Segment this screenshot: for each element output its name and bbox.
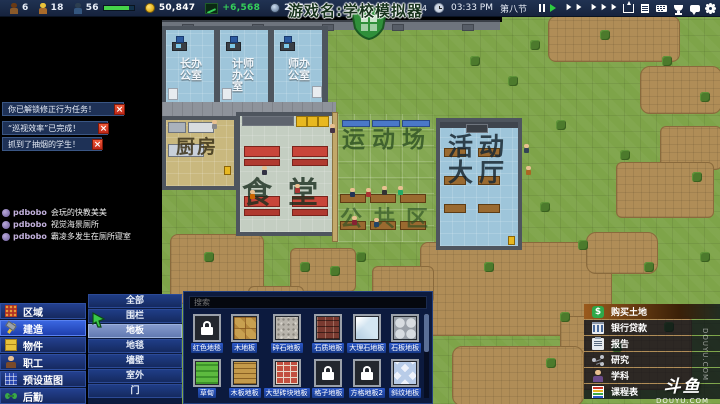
field-bench [342, 120, 370, 127]
character-sprite [382, 186, 387, 195]
canteen-bench [244, 159, 280, 166]
notification-toast: 抓到了抽烟的学生！ × [2, 137, 102, 151]
lock-icon [201, 321, 213, 335]
menu-item-buy-land[interactable]: $购买土地 [584, 304, 720, 319]
tile-palette-panel: 红色地毯 木地板 碎石地板 石质地板 大理石地板 石板地板 草甸 木板地板 大型… [183, 291, 433, 404]
character-sprite [366, 188, 371, 197]
close-icon[interactable]: × [98, 123, 109, 134]
field-table [370, 194, 396, 203]
coin-icon [145, 3, 155, 13]
notification-toast: 你已解锁修正行为任务！ × [2, 102, 124, 116]
subject-person-icon [592, 370, 604, 382]
field-bench [372, 120, 400, 127]
tile-gravel-floor[interactable]: 碎石地板 [264, 314, 310, 353]
chat-text: 霸凌多发生在厕所寝室 [51, 231, 131, 242]
character-sprite [212, 120, 217, 129]
time-display: 03:33 PM [451, 3, 493, 13]
object-box-icon [5, 339, 17, 351]
canteen-table [244, 146, 280, 157]
stat-money[interactable]: 50,847 [145, 3, 196, 13]
hall-desk [444, 204, 466, 213]
menu-item-bank-loan[interactable]: 银行贷款 [584, 320, 720, 335]
hall-desk [478, 148, 500, 157]
guard-count: 56 [86, 3, 99, 13]
build-main-menu: 区域 建造 物件 职工 预设蓝图 后勤 [0, 303, 86, 404]
lock-icon [361, 366, 373, 380]
report-icon [592, 338, 604, 350]
menu-item-logistics[interactable]: 后勤 [0, 388, 86, 404]
tile-diagonal-floor[interactable]: 斜纹地板 [386, 359, 424, 398]
hall-desk [478, 204, 500, 213]
kitchen-table [168, 144, 204, 157]
blueprint-grid-icon [5, 373, 17, 385]
stat-students[interactable]: 6 [10, 3, 29, 14]
dollar-icon: $ [592, 306, 604, 318]
hall-desk [478, 176, 500, 185]
office-cabinet [312, 86, 322, 98]
hall-stage-desk [466, 124, 488, 133]
chat-message: pdbobo 会玩的快教美美 [2, 207, 107, 218]
tile-meadow[interactable]: 草甸 [188, 359, 226, 398]
cursor-icon [92, 312, 106, 328]
character-sprite [352, 216, 357, 225]
chat-message: pdbobo 霸凌多发生在厕所寝室 [2, 231, 131, 242]
office-chair [176, 36, 184, 43]
canteen-bench [244, 209, 280, 216]
wood-plank-tile [234, 362, 256, 384]
menu-item-objects[interactable]: 物件 [0, 337, 86, 353]
menu-item-staff[interactable]: 职工 [0, 354, 86, 370]
chat-message: pdbobo 视觉海景厕所 [2, 219, 99, 230]
scrollbar[interactable] [424, 314, 429, 398]
canteen-crate [296, 116, 307, 127]
clock-icon [434, 3, 444, 13]
menu-item-research[interactable]: 研究 [584, 352, 720, 367]
office-chair [284, 36, 292, 43]
kitchen-stove [188, 122, 214, 133]
field-table [400, 221, 426, 230]
gear-icon[interactable] [707, 5, 714, 12]
close-icon[interactable]: × [114, 104, 125, 115]
office-desk [280, 42, 295, 51]
canteen-crate [318, 116, 329, 127]
menu-item-blueprint[interactable]: 预设蓝图 [0, 371, 86, 387]
office-chair [230, 36, 238, 43]
staff-person-icon [5, 356, 17, 368]
office-desk [226, 42, 241, 51]
gravel-tile [276, 317, 298, 339]
chat-user: pdbobo [13, 232, 47, 241]
fastest-forward-icon[interactable] [586, 3, 616, 14]
notification-toast: “巡视效率”已完成！ × [2, 121, 108, 135]
character-sprite [350, 188, 355, 197]
tile-red-carpet[interactable]: 红色地毯 [188, 314, 226, 353]
scrollbar-thumb[interactable] [424, 314, 429, 352]
menu-item-build[interactable]: 建造 [0, 320, 86, 336]
student-icon [10, 3, 18, 14]
office-block[interactable] [162, 26, 328, 110]
category-door[interactable]: 门 [88, 384, 182, 398]
search-input[interactable] [189, 296, 427, 309]
worker-icon [39, 3, 47, 14]
report-doc-icon[interactable] [641, 4, 649, 13]
tile-stone-floor[interactable]: 石质地板 [310, 314, 348, 353]
wood-parquet-tile [234, 317, 256, 339]
worker-count: 18 [51, 3, 64, 13]
stat-income[interactable]: +6,568 [205, 3, 260, 14]
chat-user: pdbobo [13, 208, 47, 217]
room-canteen[interactable] [236, 112, 336, 236]
trend-chart-icon [205, 3, 218, 14]
category-wall[interactable]: 墙壁 [88, 354, 182, 368]
flagstone-tile [394, 317, 416, 339]
red-brick-tile [276, 362, 298, 384]
character-sprite [330, 124, 335, 133]
fast-forward-icon[interactable] [561, 3, 581, 14]
office-cabinet [168, 88, 178, 100]
keyboard-icon[interactable] [656, 5, 667, 12]
menu-item-report[interactable]: 报告 [584, 336, 720, 351]
diamond-tile [394, 362, 416, 384]
notification-text: 抓到了抽烟的学生！ [8, 139, 80, 150]
menu-item-zone[interactable]: 区域 [0, 303, 86, 319]
character-sprite [524, 144, 529, 153]
category-carpet[interactable]: 地毯 [88, 339, 182, 353]
chat-bubble-icon[interactable] [690, 5, 700, 12]
douyu-watermark: 斗鱼 DOUYU.COM [656, 372, 709, 404]
hall-item [508, 236, 515, 245]
grass-tile [196, 362, 218, 384]
bank-icon [592, 322, 604, 334]
hall-desk [444, 176, 466, 185]
avatar [2, 209, 10, 217]
hammer-icon [5, 322, 17, 334]
tile-grid-floor-2[interactable]: 方格地板2 [347, 359, 386, 398]
tile-big-brick-floor[interactable]: 大型砖块地板 [264, 359, 310, 398]
canteen-crate [307, 116, 318, 127]
avatar [2, 233, 10, 241]
research-icon [592, 354, 604, 366]
douyu-logo: 斗鱼 [656, 372, 709, 397]
period-display: 第八节 [500, 2, 527, 15]
badge-icon [270, 3, 280, 13]
tile-plank-floor[interactable]: 木板地板 [226, 359, 264, 398]
canteen-table [292, 146, 328, 157]
zone-grid-icon [5, 305, 17, 317]
notification-text: “巡视效率”已完成！ [8, 123, 80, 134]
office-desk [172, 42, 187, 51]
income-value: +6,568 [222, 3, 260, 13]
close-icon[interactable]: × [92, 139, 103, 150]
progress-bar [103, 5, 135, 11]
canteen-table [292, 196, 328, 207]
marble-tile [356, 317, 378, 339]
category-outdoor[interactable]: 室外 [88, 369, 182, 383]
lock-icon [322, 366, 334, 380]
office-cabinet [222, 88, 232, 100]
share-icon[interactable] [623, 4, 634, 13]
douyu-site: DOUYU.COM [656, 397, 709, 404]
chat-user: pdbobo [13, 220, 47, 229]
avatar [2, 221, 10, 229]
stat-workers[interactable]: 18 [39, 3, 64, 14]
character-sprite [262, 166, 267, 175]
tile-grid: 红色地毯 木地板 碎石地板 石质地板 大理石地板 石板地板 草甸 木板地板 大型… [188, 314, 424, 398]
category-all[interactable]: 全部 [88, 294, 182, 308]
guard-icon [74, 3, 82, 14]
character-sprite [374, 218, 379, 227]
field-bench [402, 120, 430, 127]
character-sprite [526, 166, 531, 175]
field-table [400, 194, 426, 203]
hall-desk [444, 148, 466, 157]
tile-marble-floor[interactable]: 大理石地板 [347, 314, 386, 353]
tile-checker-floor[interactable]: 格子地板 [310, 359, 348, 398]
canteen-counter [242, 116, 294, 126]
trophy-icon[interactable] [674, 5, 683, 11]
character-sprite [398, 186, 403, 195]
tile-flagstone-floor[interactable]: 石板地板 [386, 314, 424, 353]
chat-text: 视觉海景厕所 [51, 219, 99, 230]
logistics-icon [5, 390, 17, 402]
canteen-bench [292, 209, 328, 216]
money-value: 50,847 [159, 3, 196, 13]
build-category-menu: 全部 围栏 地板 地毯 墙壁 室外 门 [88, 294, 182, 404]
chat-text: 会玩的快教美美 [51, 207, 107, 218]
stat-guards[interactable]: 56 [74, 3, 135, 14]
play-icon[interactable] [550, 4, 556, 12]
student-count: 6 [22, 3, 29, 13]
tile-wood-floor[interactable]: 木地板 [226, 314, 264, 353]
kitchen-item [224, 166, 231, 175]
game-screen: 长办公室 计师办公室 师办公室 厨房 食堂 [0, 0, 720, 404]
pause-icon[interactable] [539, 4, 545, 12]
kitchen-counter [168, 122, 186, 133]
dark-stone-brick-tile [317, 317, 339, 339]
schedule-icon [592, 386, 604, 398]
notification-text: 你已解锁修正行为任务！ [8, 104, 96, 115]
canteen-bench [292, 159, 328, 166]
character-sprite [295, 184, 300, 193]
character-sprite [250, 190, 255, 199]
stream-title: 游戏名:学校模拟器 [288, 0, 423, 21]
